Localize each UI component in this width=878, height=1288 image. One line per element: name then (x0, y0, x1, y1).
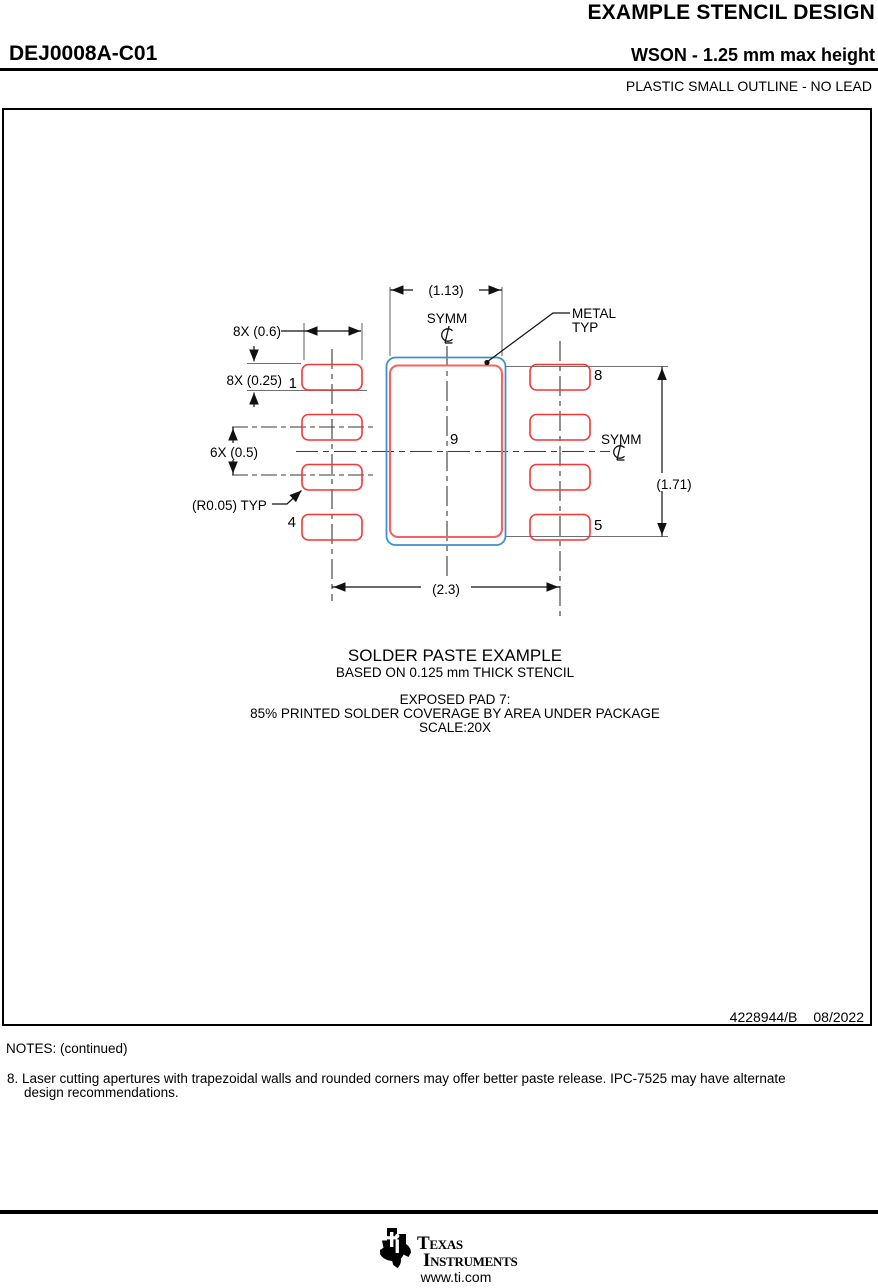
caption-coverage: 85% PRINTED SOLDER COVERAGE BY AREA UNDE… (40, 706, 870, 721)
doc-date: 08/2022 (813, 1009, 864, 1025)
stencil-design-page: EXAMPLE STENCIL DESIGN DEJ0008A-C01 WSON… (0, 0, 878, 1288)
metal-leader-dot (484, 360, 489, 365)
caption-stencil-note: BASED ON 0.125 mm THICK STENCIL (40, 665, 870, 680)
centerline-symbol-top (442, 326, 453, 343)
doc-number: 4228944/B (730, 1009, 798, 1025)
pin-4-label: 4 (288, 514, 296, 531)
dim-top-width-label: (1.13) (428, 283, 463, 298)
pad-9-label: 9 (450, 431, 458, 448)
symm-top-label: SYMM (427, 311, 468, 326)
pin-8-label: 8 (594, 367, 602, 384)
dim-pad-height-label: 8X (0.25) (226, 373, 282, 388)
note-8-line1: 8. Laser cutting apertures with trapezoi… (7, 1071, 786, 1086)
footer-rule (0, 1210, 878, 1214)
caption-exposed-pad: EXPOSED PAD 7: (40, 692, 870, 707)
dim-pitch-label: 6X (0.5) (210, 445, 258, 460)
doc-number-line: 4228944/B 08/2022 (730, 1009, 864, 1025)
metal-label-line2: TYP (572, 320, 598, 335)
dim-pad-width-label: 8X (0.6) (233, 324, 281, 339)
center-paste-pad (390, 366, 502, 538)
caption-title: SOLDER PASTE EXAMPLE (40, 646, 870, 666)
note-8-line2: design recommendations. (24, 1085, 179, 1100)
notes-heading: NOTES: (continued) (6, 1041, 128, 1056)
pin-5-label: 5 (594, 517, 602, 534)
pin-1-label: 1 (289, 375, 297, 392)
ti-logo-icon (376, 1228, 411, 1268)
dim-span-label: (2.3) (432, 582, 460, 597)
metal-label-line1: METAL (572, 306, 616, 321)
dim-height-label: (1.71) (656, 477, 691, 492)
ti-url: www.ti.com (396, 1269, 516, 1285)
dim-radius-label: (R0.05) TYP (192, 498, 267, 513)
caption-scale: SCALE:20X (40, 720, 870, 735)
